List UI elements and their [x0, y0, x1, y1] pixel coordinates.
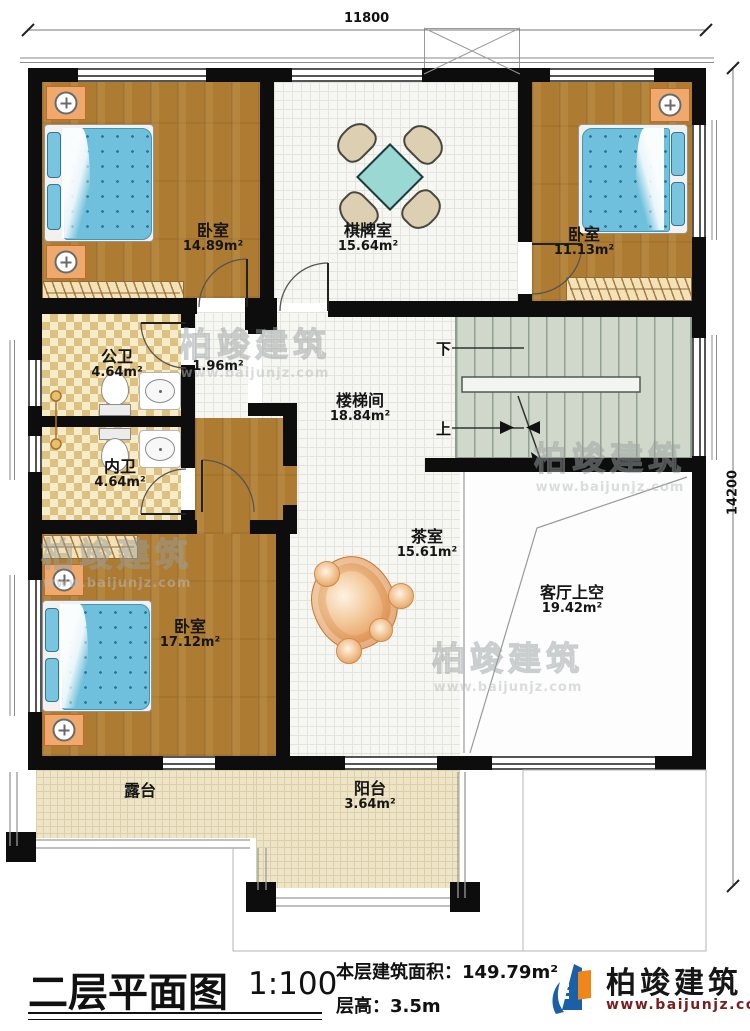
sink-basin — [145, 437, 175, 461]
room-label-stair-hall: 楼梯间18.84m² — [330, 392, 390, 424]
wall-interior — [248, 298, 262, 334]
stool — [388, 583, 414, 609]
room-label-tea-room: 茶室15.61m² — [397, 528, 457, 560]
bed-sheet-fold — [60, 604, 88, 708]
wall-interior — [283, 414, 297, 466]
room-label-bedroom-top-left: 卧室14.89m² — [183, 222, 243, 254]
balcony-sliding-door — [345, 756, 437, 770]
lamp-icon — [55, 251, 78, 274]
window — [28, 360, 42, 406]
window — [292, 68, 422, 82]
lamp-icon — [53, 719, 76, 742]
column — [6, 832, 36, 862]
pillow — [671, 182, 685, 226]
room-label-game-room: 棋牌室15.64m² — [338, 222, 398, 254]
nightstand — [650, 88, 690, 122]
room-label-public-bath: 公卫4.64m² — [91, 348, 142, 380]
wardrobe — [42, 535, 138, 559]
room-label-private-bath: 内卫4.64m² — [94, 458, 145, 490]
bed-sheet-fold — [636, 128, 664, 230]
wall-interior — [518, 82, 532, 242]
brand-logo-icon — [548, 956, 602, 1018]
brand-name: 柏竣建筑 — [606, 958, 742, 1002]
wall-interior — [260, 82, 274, 312]
window — [692, 125, 706, 237]
column — [450, 882, 480, 912]
stool — [336, 638, 362, 664]
wall-interior — [425, 458, 692, 472]
nightstand — [46, 245, 86, 279]
floor-plan-sheet: 11800 14200 下 上 卧室14.89m² 棋牌室15.64m² 卧室1… — [0, 0, 750, 1031]
nightstand — [46, 86, 86, 120]
pillow — [47, 132, 61, 178]
wall-interior — [328, 301, 692, 317]
stair-down-label: 下 — [436, 338, 451, 359]
pillow — [45, 608, 59, 652]
wall-interior — [181, 365, 195, 468]
dim-right-height: 14200 — [726, 463, 741, 523]
window — [78, 68, 206, 82]
toilet-tank — [99, 404, 131, 416]
window — [692, 338, 706, 456]
wall-interior — [42, 520, 197, 534]
room-label-hallway: 1.96m² — [192, 360, 243, 375]
floor-ensuite-corridor — [195, 418, 297, 534]
room-label-bedroom-top-right: 卧室11.13m² — [554, 226, 614, 258]
dim-top-width: 11800 — [344, 11, 389, 26]
sink — [139, 372, 181, 410]
wall-interior — [181, 312, 195, 328]
window — [492, 756, 655, 770]
floor-area-value: 149.79m² — [462, 962, 558, 983]
stool — [369, 618, 393, 642]
sheet-scale: 1:100 — [248, 966, 337, 1002]
wall-bath-divider — [42, 416, 181, 427]
window — [550, 68, 654, 82]
brand-website: www.baijunjz.com — [606, 997, 750, 1013]
floor-height-line: 层高：3.5m — [336, 992, 441, 1018]
lamp-icon — [55, 92, 78, 115]
floor-area-line: 本层建筑面积：149.79m² — [336, 958, 558, 984]
wardrobe — [566, 277, 692, 301]
pillow — [47, 184, 61, 230]
lamp-icon — [53, 569, 76, 592]
floor-area-label: 本层建筑面积： — [336, 962, 462, 983]
bed — [44, 124, 154, 242]
nightstand — [44, 714, 84, 746]
pillow — [45, 658, 59, 702]
room-label-living-void: 客厅上空19.42m² — [540, 584, 604, 616]
sheet-title: 二层平面图 — [28, 960, 228, 1018]
floor-height-label: 层高： — [336, 996, 390, 1017]
floor-height-value: 3.5m — [390, 996, 441, 1017]
stair-up-label: 上 — [436, 418, 451, 439]
title-underline — [28, 1012, 322, 1020]
pillow — [671, 132, 685, 176]
stool — [314, 561, 340, 587]
wall-interior — [42, 298, 197, 314]
nightstand — [44, 564, 84, 596]
room-label-balcony: 阳台3.64m² — [344, 780, 395, 812]
window — [163, 756, 215, 770]
column — [246, 882, 276, 912]
lamp-icon — [659, 94, 682, 117]
sink-basin — [145, 379, 175, 403]
window — [28, 580, 42, 712]
wall-interior — [283, 505, 297, 534]
bed — [42, 600, 152, 712]
room-label-terrace: 露台 — [124, 782, 156, 800]
wall-interior — [276, 534, 290, 756]
bed — [578, 124, 688, 234]
bed-sheet-fold — [62, 128, 90, 238]
room-label-bedroom-bottom-left: 卧室17.12m² — [160, 618, 220, 650]
window — [28, 436, 42, 472]
stair-flight-area — [455, 315, 692, 458]
